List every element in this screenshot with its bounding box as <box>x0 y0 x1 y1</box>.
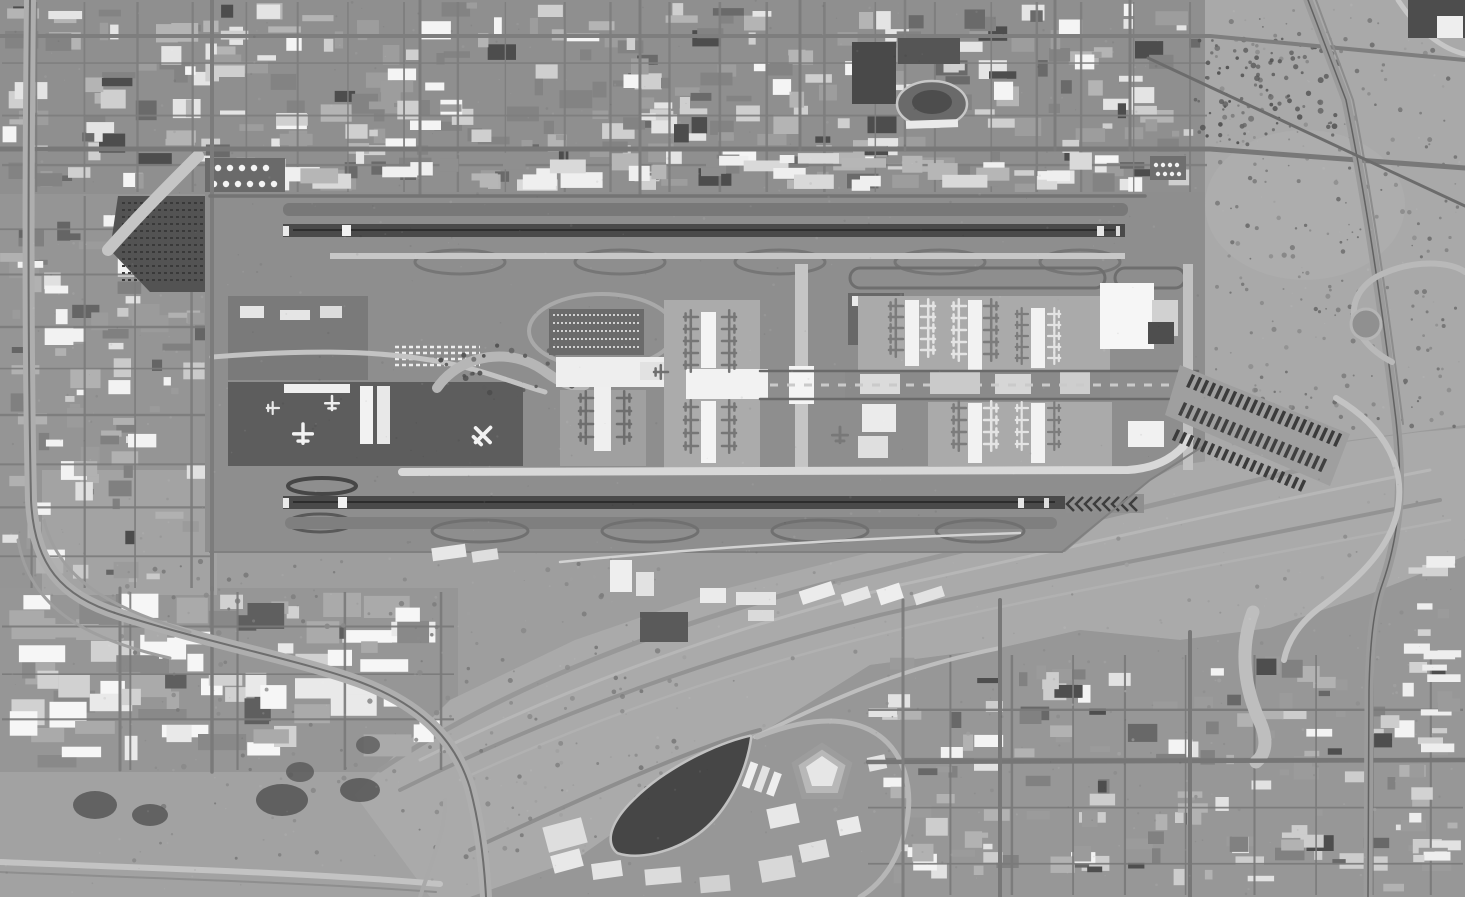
speckle-dot <box>566 790 568 792</box>
speckle-dot <box>1194 98 1198 102</box>
speckle-dot <box>1185 849 1187 851</box>
speckle-dot <box>1195 841 1197 843</box>
satellite-image <box>0 0 1465 897</box>
speckle-dot <box>1325 308 1327 310</box>
building-block <box>974 866 984 875</box>
speckle-dot <box>742 462 744 464</box>
building-block <box>268 26 301 32</box>
speckle-dot <box>252 331 254 333</box>
building-block <box>544 121 554 134</box>
building-block <box>1383 884 1404 892</box>
speckle-dot <box>528 117 530 119</box>
speckle-dot <box>5 864 7 866</box>
speckle-dot <box>1382 164 1383 165</box>
speckle-dot <box>417 13 419 15</box>
speckle-dot <box>546 685 547 686</box>
speckle-dot <box>1250 331 1253 334</box>
speckle-dot <box>894 774 896 776</box>
speckle-dot <box>750 205 752 207</box>
speckle-dot <box>1394 460 1397 463</box>
speckle-dot <box>1197 100 1200 103</box>
building-block <box>19 645 65 662</box>
speckle-dot <box>886 702 889 705</box>
speckle-dot <box>1377 417 1380 420</box>
building-block <box>302 15 333 21</box>
speckle-dot <box>231 152 233 154</box>
speckle-dot <box>625 624 627 626</box>
speckle-dot <box>399 185 401 187</box>
speckle-dot <box>777 267 779 269</box>
speckle-dot <box>198 559 203 564</box>
speckle-dot <box>674 683 678 687</box>
speckle-dot <box>252 203 254 205</box>
speckle-dot <box>487 390 493 396</box>
speckle-dot <box>1304 123 1308 127</box>
speckle-dot <box>1260 93 1263 96</box>
speckle-dot <box>445 696 450 701</box>
speckle-dot <box>1254 388 1258 392</box>
speckle-dot <box>1217 678 1221 682</box>
speckle-dot <box>1272 128 1275 131</box>
speckle-dot <box>1409 424 1414 429</box>
speckle-dot <box>1282 288 1284 290</box>
speckle-dot <box>173 79 176 82</box>
speckle-dot <box>1114 243 1115 244</box>
speckle-dot <box>1352 171 1353 172</box>
speckle-dot <box>321 864 323 866</box>
speckle-dot <box>1446 76 1450 80</box>
speckle-dot <box>315 850 319 854</box>
speckle-dot <box>445 363 449 367</box>
speckle-dot <box>1132 287 1133 288</box>
speckle-dot <box>1154 819 1156 821</box>
runway-threshold <box>342 225 351 236</box>
speckle-dot <box>749 131 750 132</box>
speckle-dot <box>62 531 63 532</box>
speckle-dot <box>978 193 981 196</box>
speckle-dot <box>1421 42 1423 44</box>
speckle-dot <box>1157 40 1158 41</box>
building-block <box>211 66 245 78</box>
speckle-dot <box>1454 155 1458 159</box>
speckle-dot <box>1195 356 1196 357</box>
speckle-dot <box>534 385 537 388</box>
speckle-dot <box>1259 389 1261 391</box>
speckle-dot <box>1359 228 1361 230</box>
speckle-dot <box>617 482 619 484</box>
speckle-dot <box>889 217 890 218</box>
speckle-dot <box>41 160 44 163</box>
speckle-dot <box>608 567 610 569</box>
speckle-dot <box>89 374 90 375</box>
building-block <box>185 66 196 75</box>
building-block <box>868 138 898 146</box>
speckle-dot <box>599 797 601 799</box>
speckle-dot <box>1318 310 1321 313</box>
speckle-dot <box>1215 55 1218 58</box>
speckle-dot <box>1349 635 1351 637</box>
speckle-dot <box>268 176 270 178</box>
building-block <box>942 175 987 188</box>
speckle-dot <box>1262 337 1264 339</box>
speckle-dot <box>238 254 240 256</box>
speckle-dot <box>525 620 526 621</box>
building-block <box>1103 123 1113 128</box>
building-block <box>324 39 333 52</box>
speckle-dot <box>600 593 605 598</box>
speckle-dot <box>247 637 249 639</box>
speckle-dot <box>1340 537 1341 538</box>
building-block <box>1088 80 1103 95</box>
speckle-dot <box>1124 719 1126 721</box>
speckle-dot <box>173 673 176 676</box>
speckle-dot <box>1263 17 1265 19</box>
speckle-dot <box>290 276 292 278</box>
speckle-dot <box>1104 543 1105 544</box>
speckle-dot <box>1243 132 1246 135</box>
building-block <box>991 152 1000 161</box>
speckle-dot <box>155 767 158 770</box>
speckle-dot <box>769 27 772 30</box>
speckle-dot <box>1348 137 1349 138</box>
speckle-dot <box>752 483 754 485</box>
speckle-dot <box>28 6 29 7</box>
speckle-dot <box>1417 400 1419 402</box>
building-block <box>1421 744 1454 753</box>
speckle-dot <box>1068 660 1071 663</box>
speckle-dot <box>1237 604 1239 606</box>
building-block <box>102 78 132 86</box>
building-block <box>1438 699 1460 712</box>
building-block <box>126 296 141 303</box>
speckle-dot <box>990 698 991 699</box>
speckle-dot <box>1125 563 1129 567</box>
building-block <box>13 310 21 319</box>
speckle-dot <box>385 779 388 782</box>
speckle-dot <box>153 567 158 572</box>
speckle-dot <box>1298 275 1301 278</box>
support-building <box>862 404 896 432</box>
speckle-dot <box>1270 52 1272 54</box>
speckle-dot <box>118 838 120 840</box>
building-block <box>1109 673 1131 686</box>
runway-threshold <box>283 226 289 236</box>
building-block <box>1015 184 1035 192</box>
speckle-dot <box>554 408 555 409</box>
terminal4-main-building <box>686 369 768 399</box>
speckle-dot <box>955 866 957 868</box>
building-block <box>260 685 286 709</box>
speckle-dot <box>1205 134 1208 137</box>
speckle-dot <box>628 754 630 756</box>
speckle-dot <box>413 162 416 165</box>
speckle-dot <box>1408 366 1410 368</box>
speckle-dot <box>372 205 374 207</box>
speckle-dot <box>982 637 984 639</box>
building-block <box>1409 567 1424 573</box>
speckle-dot <box>508 678 513 683</box>
speckle-dot <box>961 221 963 223</box>
speckle-dot <box>864 762 866 764</box>
speckle-dot <box>511 806 514 809</box>
speckle-dot <box>1139 527 1140 528</box>
speckle-dot <box>421 660 423 662</box>
speckle-dot <box>266 22 268 24</box>
storage-tank <box>1163 172 1167 176</box>
speckle-dot <box>1223 552 1224 553</box>
speckle-dot <box>529 46 531 48</box>
speckle-dot <box>1384 78 1387 81</box>
speckle-dot <box>990 789 994 793</box>
speckle-dot <box>1046 151 1048 153</box>
speckle-dot <box>596 762 599 765</box>
speckle-dot <box>315 490 317 492</box>
building-block <box>898 710 922 720</box>
speckle-dot <box>563 807 565 809</box>
speckle-dot <box>501 658 505 662</box>
speckle-dot <box>490 495 492 497</box>
speckle-dot <box>1218 133 1222 137</box>
speckle-dot <box>1436 327 1437 328</box>
speckle-dot <box>639 765 644 770</box>
speckle-dot <box>314 424 317 427</box>
speckle-dot <box>1308 81 1310 83</box>
speckle-dot <box>365 400 367 402</box>
building-block <box>1448 823 1458 829</box>
building-block <box>965 10 986 29</box>
speckle-dot <box>1461 860 1462 861</box>
speckle-dot <box>1219 67 1222 70</box>
speckle-dot <box>1194 795 1197 798</box>
speckle-dot <box>1415 733 1417 735</box>
speckle-dot <box>910 592 914 596</box>
east-concourse-pier <box>905 300 919 366</box>
building-block <box>356 150 364 165</box>
building-block <box>1038 171 1069 180</box>
speckle-dot <box>1179 762 1181 764</box>
speckle-dot <box>1106 627 1109 630</box>
speckle-dot <box>223 660 227 664</box>
building-block <box>410 121 441 131</box>
building-block <box>380 80 413 92</box>
speckle-dot <box>1249 618 1252 621</box>
speckle-dot <box>1155 883 1158 886</box>
speckle-dot <box>520 833 524 837</box>
speckle-dot <box>648 798 649 799</box>
building-block <box>1438 650 1462 657</box>
speckle-dot <box>169 416 172 419</box>
speckle-dot <box>395 347 396 348</box>
speckle-dot <box>79 591 80 592</box>
speckle-dot <box>1113 205 1115 207</box>
building-block <box>950 850 976 857</box>
speckle-dot <box>385 56 387 58</box>
speckle-dot <box>326 705 328 707</box>
building-block <box>323 593 361 617</box>
speckle-dot <box>1411 318 1413 320</box>
speckle-dot <box>1012 472 1014 474</box>
speckle-dot <box>518 814 520 816</box>
speckle-dot <box>1327 426 1329 428</box>
speckle-dot <box>745 120 746 121</box>
building-block <box>1281 840 1304 851</box>
speckle-dot <box>1103 349 1106 352</box>
building-block <box>168 313 188 318</box>
speckle-dot <box>1340 241 1343 244</box>
speckle-dot <box>435 596 438 599</box>
building-block <box>994 82 1013 100</box>
building-block <box>287 101 305 113</box>
speckle-dot <box>79 543 80 544</box>
speckle-dot <box>450 30 453 33</box>
speckle-dot <box>332 355 333 356</box>
speckle-dot <box>1002 241 1004 243</box>
building-block <box>1014 748 1034 757</box>
speckle-dot <box>824 173 827 176</box>
building-block <box>1227 695 1241 706</box>
speckle-dot <box>60 439 62 441</box>
speckle-dot <box>1373 808 1377 812</box>
building-block <box>1014 170 1034 176</box>
speckle-dot <box>1037 255 1039 257</box>
speckle-dot <box>1255 226 1259 230</box>
building-block <box>488 44 516 60</box>
speckle-dot <box>1360 874 1362 876</box>
speckle-dot <box>809 158 812 161</box>
building-block <box>651 165 666 180</box>
building-block <box>780 155 795 163</box>
speckle-dot <box>826 121 829 124</box>
speckle-dot <box>1335 179 1337 181</box>
speckle-dot <box>1026 198 1027 199</box>
speckle-dot <box>673 216 674 217</box>
white-building-ne-corner <box>1437 16 1463 38</box>
speckle-dot <box>196 577 200 581</box>
speckle-dot <box>356 253 359 256</box>
speckle-dot <box>1437 367 1440 370</box>
speckle-dot <box>409 541 411 543</box>
speckle-dot <box>1123 523 1124 524</box>
building-block <box>369 102 394 110</box>
speckle-dot <box>1347 239 1349 241</box>
speckle-dot <box>1361 686 1363 688</box>
speckle-dot <box>691 349 692 350</box>
building-block <box>108 380 130 394</box>
speckle-dot <box>401 809 405 813</box>
building-block <box>35 173 62 186</box>
speckle-dot <box>355 52 358 55</box>
speckle-dot <box>1198 39 1202 43</box>
speckle-dot <box>110 344 112 346</box>
speckle-dot <box>58 244 59 245</box>
building-block <box>101 90 126 109</box>
speckle-dot <box>1235 241 1240 246</box>
north-south-taxilane <box>330 253 1125 259</box>
speckle-dot <box>582 849 585 852</box>
speckle-dot <box>1439 217 1442 220</box>
speckle-dot <box>764 314 767 317</box>
speckle-dot <box>1351 426 1355 430</box>
speckle-dot <box>655 745 659 749</box>
speckle-dot <box>912 163 913 164</box>
speckle-dot <box>1186 780 1188 782</box>
speckle-dot <box>1273 34 1277 38</box>
building-block <box>75 721 115 734</box>
speckle-dot <box>935 510 937 512</box>
building-block <box>45 286 68 294</box>
speckle-dot <box>883 420 885 422</box>
building-block <box>183 363 204 380</box>
speckle-dot <box>1260 375 1264 379</box>
building-block <box>1172 131 1179 137</box>
speckle-dot <box>1255 50 1260 55</box>
speckle-dot <box>718 625 720 627</box>
speckle-dot <box>240 884 242 886</box>
building-block <box>815 136 830 142</box>
speckle-dot <box>610 756 612 758</box>
speckle-dot <box>920 229 921 230</box>
dirt-mound <box>340 778 380 802</box>
speckle-dot <box>253 61 255 63</box>
speckle-dot <box>1240 124 1245 129</box>
speckle-dot <box>508 384 512 388</box>
speckle-dot <box>1417 222 1420 225</box>
speckle-dot <box>1242 140 1245 143</box>
speckle-dot <box>117 327 118 328</box>
speckle-dot <box>139 704 140 705</box>
speckle-dot <box>1200 125 1206 131</box>
speckle-dot <box>1281 38 1284 41</box>
storage-tank <box>263 165 269 171</box>
building-block <box>102 72 135 78</box>
speckle-dot <box>198 685 200 687</box>
speckle-dot <box>763 587 765 589</box>
building-block <box>345 124 367 139</box>
speckle-dot <box>472 582 474 584</box>
south-building <box>700 588 726 603</box>
speckle-dot <box>1207 705 1211 709</box>
speckle-dot <box>1159 811 1161 813</box>
storage-tank <box>1154 163 1158 167</box>
building-block <box>1075 55 1094 70</box>
speckle-dot <box>949 201 952 204</box>
speckle-dot <box>1247 131 1249 133</box>
speckle-dot <box>1348 167 1351 170</box>
speckle-dot <box>1384 172 1388 176</box>
speckle-dot <box>604 423 605 424</box>
speckle-dot <box>1454 307 1457 310</box>
speckle-dot <box>1350 17 1352 19</box>
speckle-dot <box>1390 309 1391 310</box>
speckle-dot <box>656 736 659 739</box>
speckle-dot <box>1452 425 1455 428</box>
speckle-dot <box>918 61 919 62</box>
speckle-dot <box>1336 197 1341 202</box>
speckle-dot <box>565 582 569 586</box>
speckle-dot <box>425 83 427 85</box>
speckle-dot <box>1315 336 1317 338</box>
building-block <box>65 396 74 402</box>
building-block <box>369 130 378 137</box>
speckle-dot <box>1321 576 1325 580</box>
speckle-dot <box>1318 478 1320 480</box>
speckle-dot <box>1160 622 1162 624</box>
speckle-dot <box>1393 467 1396 470</box>
cargo-dark-lot <box>1148 322 1174 344</box>
speckle-dot <box>1185 448 1186 449</box>
speckle-dot <box>1297 32 1301 36</box>
building-block <box>358 27 368 40</box>
